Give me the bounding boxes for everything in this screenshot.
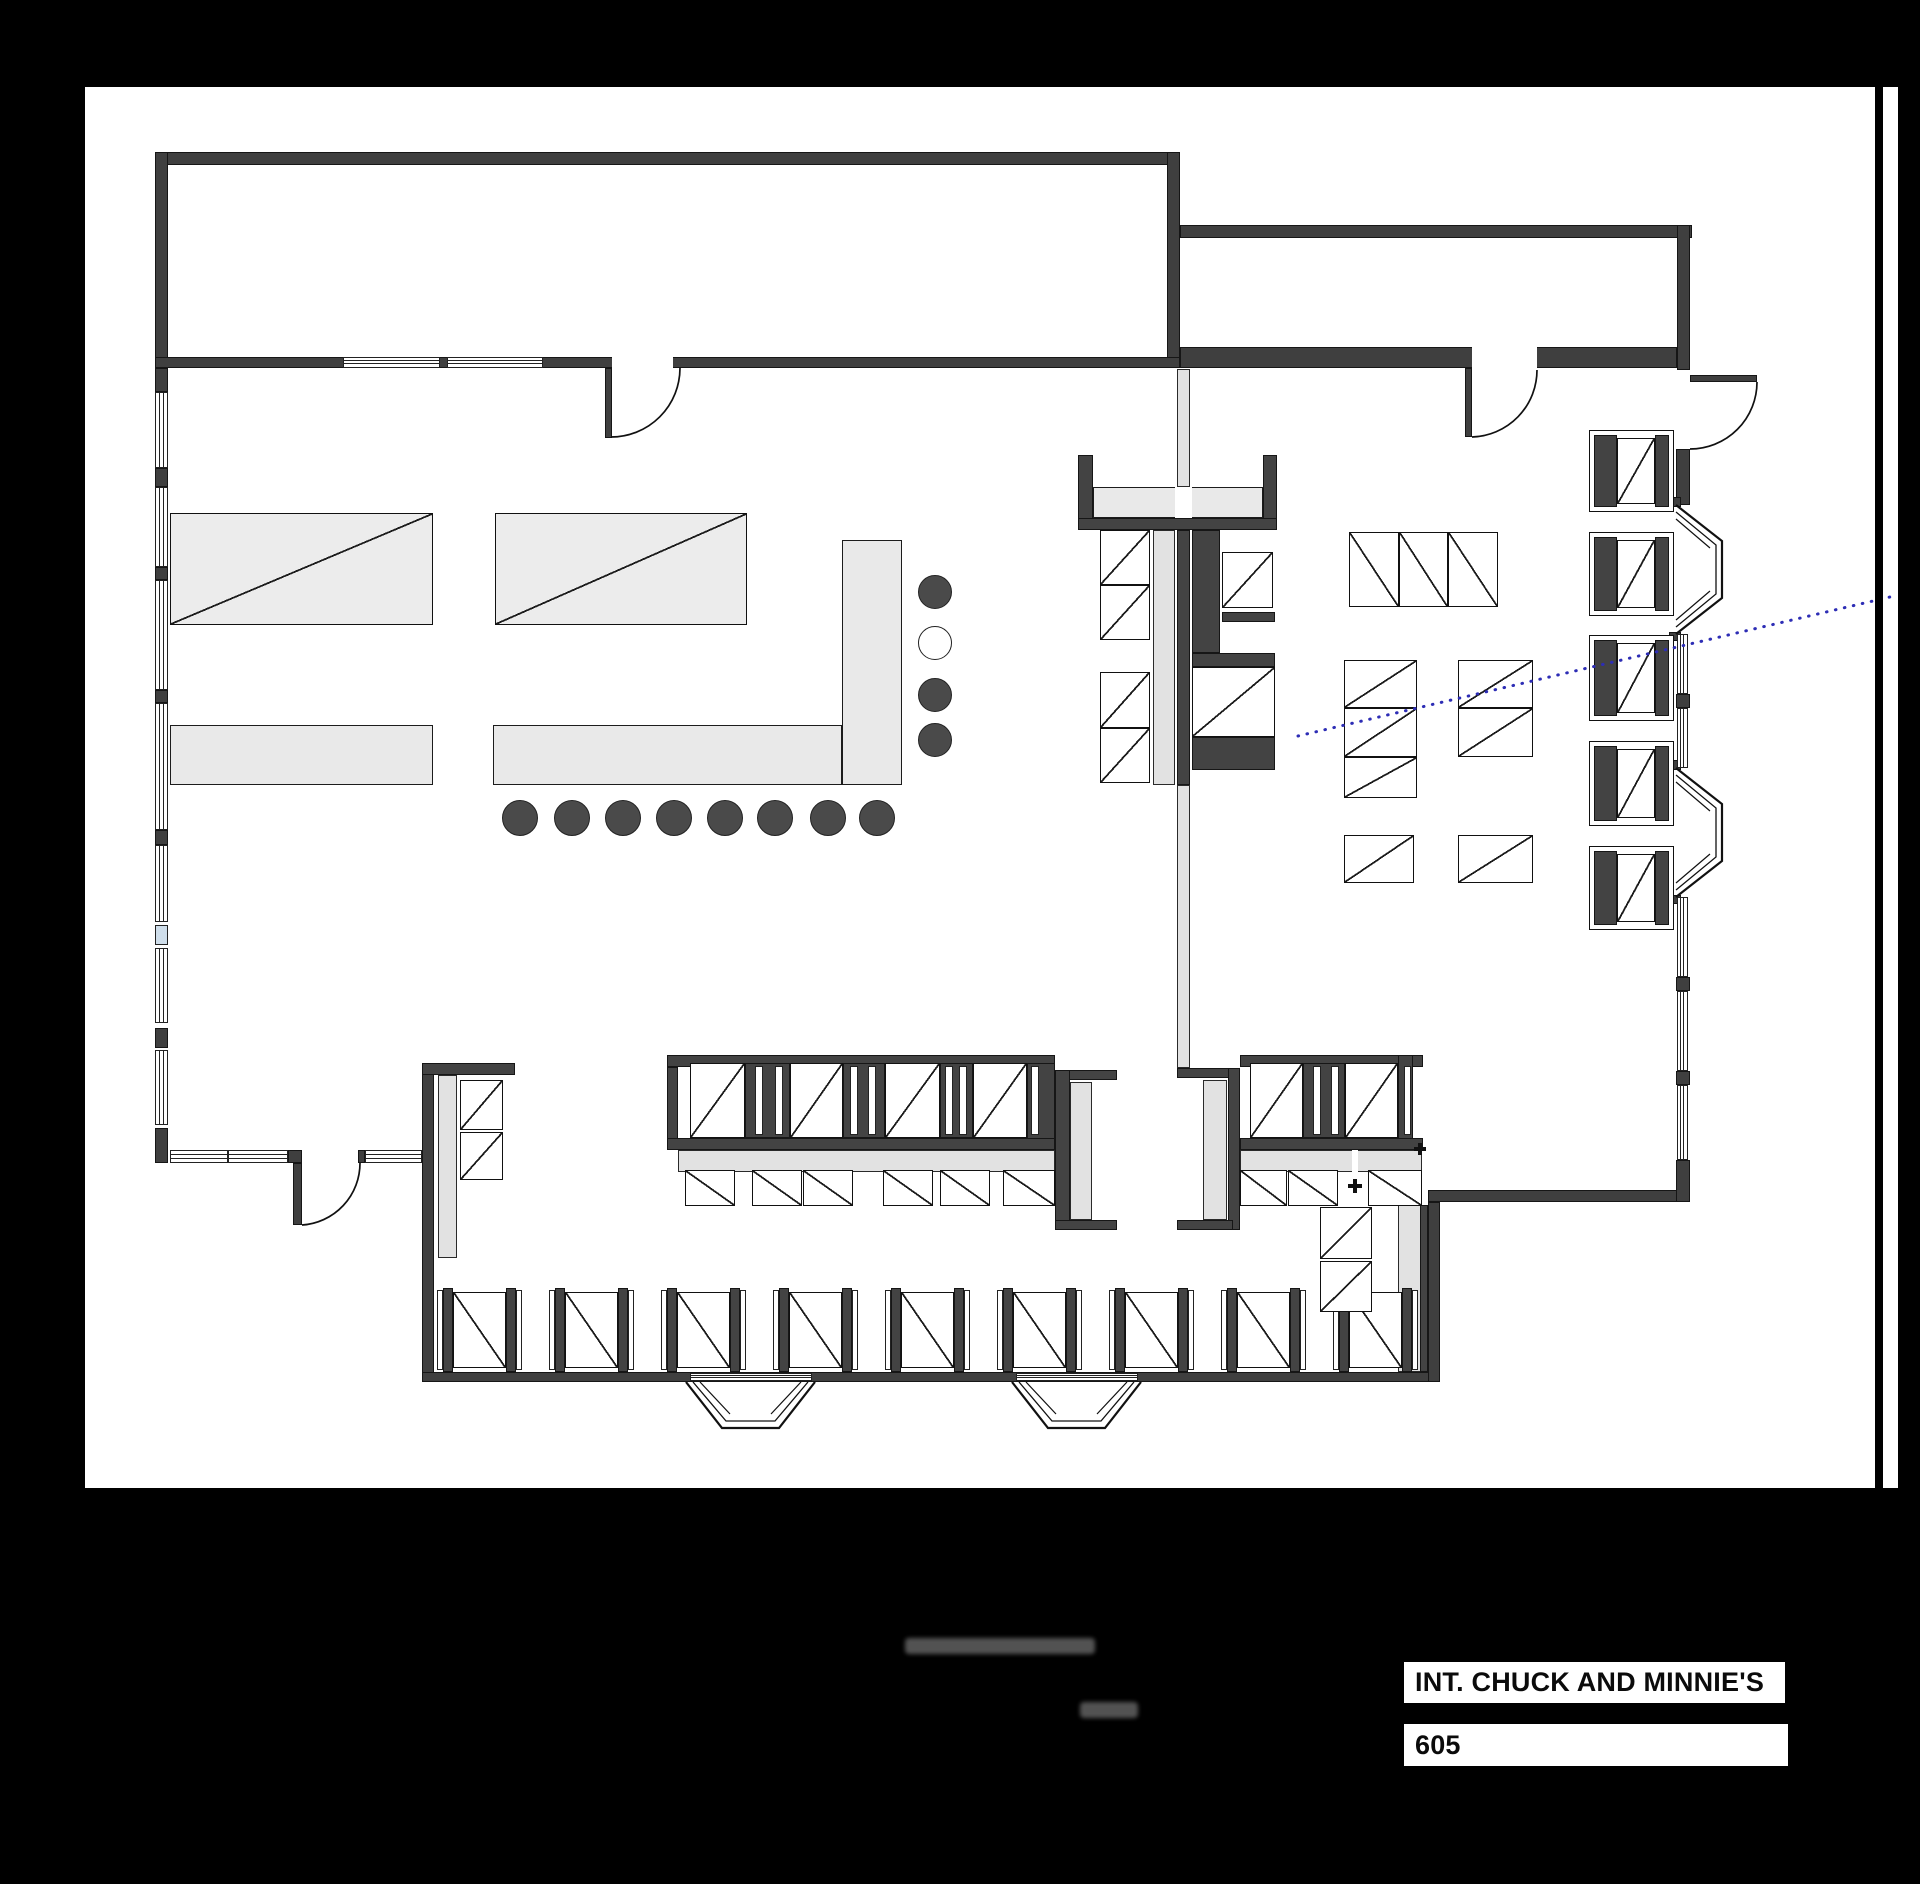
window <box>690 1373 812 1381</box>
counter-stool <box>918 678 952 712</box>
floor-plan-drawing <box>0 0 1920 1884</box>
kitchen-table <box>495 513 747 625</box>
booth-table <box>940 1170 990 1206</box>
divider-wall-back-rooms <box>1167 152 1180 368</box>
window <box>228 1150 288 1163</box>
booth-table <box>790 1063 843 1138</box>
bench-back <box>964 1290 970 1370</box>
kitchen-table <box>170 513 433 625</box>
counter-stool <box>810 800 846 836</box>
booth-table <box>973 1063 1027 1138</box>
booth-bench <box>1290 1288 1300 1372</box>
island-post <box>1078 455 1093 520</box>
booth-bench <box>1594 435 1617 507</box>
right-wall-stub <box>1676 1071 1690 1085</box>
lunch-counter-corner <box>845 727 900 783</box>
corner-booth-table <box>1320 1207 1372 1259</box>
booth-table <box>460 1132 503 1180</box>
booth-bench <box>1655 851 1669 925</box>
window <box>343 357 440 368</box>
top-wall-back-right-room <box>1180 225 1692 238</box>
island-equipment-block <box>1192 530 1220 653</box>
dining-table <box>1458 835 1533 883</box>
left-wall-segment <box>155 1028 168 1048</box>
left-wall-segment <box>155 690 168 703</box>
booth-bench <box>1594 640 1617 716</box>
dining-table <box>1344 708 1417 757</box>
booth-bench <box>1066 1288 1076 1372</box>
left-wall-segment <box>155 468 168 487</box>
counter-stool <box>918 723 952 757</box>
booth-bench <box>1655 435 1669 507</box>
entry-door-jamb <box>288 1150 302 1163</box>
window <box>155 845 168 922</box>
window <box>155 487 168 567</box>
booth-table <box>453 1292 506 1368</box>
scene-number-box: 605 <box>1404 1724 1788 1766</box>
counter-stool <box>707 800 743 836</box>
dining-table <box>1458 660 1533 708</box>
bench-back <box>1331 1066 1339 1135</box>
bench-gap <box>1352 1150 1358 1172</box>
window <box>1677 708 1688 768</box>
booth-table <box>690 1063 745 1138</box>
counter-stool <box>605 800 641 836</box>
booth-endcap-spine <box>1228 1068 1240 1230</box>
right-wall-back-right-room <box>1677 225 1690 370</box>
counter-stool <box>859 800 895 836</box>
island-shelf <box>1192 653 1275 667</box>
booth-endcap-flange <box>1055 1220 1117 1230</box>
booth-row-right-bench <box>1240 1150 1422 1172</box>
booth-bench <box>506 1288 516 1372</box>
island-bench <box>1153 530 1175 785</box>
bench-back <box>1404 1066 1411 1135</box>
booth-table <box>1250 1063 1303 1138</box>
booth-bench <box>730 1288 740 1372</box>
booth-row-left-bottom-band <box>667 1138 1055 1150</box>
booth-bench <box>1178 1288 1188 1372</box>
island-table <box>1100 530 1150 585</box>
sheet-border-line <box>1875 87 1883 1488</box>
corner-booth-table <box>1320 1261 1372 1312</box>
door-leaf-back-wall <box>605 368 612 438</box>
bench-back <box>868 1066 876 1135</box>
window <box>1677 634 1688 694</box>
screenshot-root: INT. CHUCK AND MINNIE'S 605 <box>0 0 1920 1884</box>
booth-table <box>460 1080 503 1130</box>
island-table <box>1192 667 1275 737</box>
booth-table <box>685 1170 735 1206</box>
right-wall-stub <box>1676 694 1690 708</box>
counter-stool <box>656 800 692 836</box>
left-booth-bench <box>438 1075 457 1258</box>
booth-table <box>1617 643 1655 713</box>
booth-row-right-bottom-band <box>1240 1138 1423 1150</box>
right-wall-stub <box>1676 977 1690 991</box>
booth-table <box>677 1292 730 1368</box>
window <box>1677 991 1688 1071</box>
artifact-smudge <box>1080 1702 1138 1718</box>
island-table <box>1100 672 1150 728</box>
booth-table <box>1617 749 1655 818</box>
booth-endcap-flange <box>1177 1220 1233 1230</box>
island-table <box>1100 585 1150 640</box>
bench-back <box>850 1066 858 1135</box>
booth-bench <box>1655 640 1669 716</box>
booth-bench <box>1655 537 1669 611</box>
counter-stool <box>757 800 793 836</box>
left-wall-back-room <box>155 152 168 368</box>
dining-table <box>1344 757 1417 798</box>
booth-table <box>803 1170 853 1206</box>
left-wall-segment <box>155 830 168 845</box>
window <box>365 1150 422 1163</box>
booth-table <box>885 1063 940 1138</box>
booth-bench <box>1115 1288 1125 1372</box>
glass-pane <box>155 925 168 945</box>
booth-endcap-bench <box>1070 1082 1092 1220</box>
bench-back <box>755 1066 763 1135</box>
window <box>155 580 168 690</box>
counter-stool <box>554 800 590 836</box>
bench-back <box>740 1290 746 1370</box>
booth-table <box>1288 1170 1338 1206</box>
top-wall-back-room <box>155 152 1180 165</box>
dining-table <box>1344 835 1414 883</box>
bench-back <box>1031 1066 1039 1135</box>
booth-bench <box>555 1288 565 1372</box>
bench-back <box>1412 1290 1418 1370</box>
booth-table <box>1237 1292 1290 1368</box>
bench-back <box>628 1290 634 1370</box>
bench-back <box>852 1290 858 1370</box>
island-pass-gap <box>1175 487 1192 518</box>
booth-bench <box>1594 537 1617 611</box>
booth-bench <box>1655 746 1669 821</box>
window <box>1677 1085 1688 1160</box>
left-booth-cap <box>422 1063 515 1075</box>
booth-endcap-flange <box>1177 1068 1233 1078</box>
bench-back <box>775 1066 783 1135</box>
booth-bench <box>1594 851 1617 925</box>
island-table <box>1100 728 1150 783</box>
booth-table <box>1345 1063 1398 1138</box>
window <box>170 1150 228 1163</box>
bench-back <box>945 1066 953 1135</box>
booth-bench <box>667 1288 677 1372</box>
booth-table <box>901 1292 954 1368</box>
left-wall-segment <box>155 368 168 392</box>
plus-marker <box>1348 1179 1362 1193</box>
right-wall-segment <box>1676 1160 1690 1202</box>
dining-table <box>1349 532 1399 607</box>
counter-stool <box>918 575 952 609</box>
booth-bench <box>618 1288 628 1372</box>
booth-table <box>1125 1292 1178 1368</box>
booth-table <box>1617 438 1655 504</box>
scene-name-box: INT. CHUCK AND MINNIE'S <box>1404 1662 1785 1703</box>
booth-bench <box>891 1288 901 1372</box>
window <box>1677 897 1688 977</box>
window <box>155 392 168 468</box>
booth-bench <box>1594 746 1617 821</box>
dining-table <box>1448 532 1498 607</box>
island-table <box>1222 552 1273 608</box>
window <box>155 948 168 1023</box>
door-leaf-entry <box>293 1163 302 1225</box>
lower-left-wall <box>422 1063 434 1382</box>
booth-table <box>1368 1170 1422 1206</box>
bottom-wall <box>422 1372 1440 1382</box>
booth-bench <box>1402 1288 1412 1372</box>
bench-back <box>1300 1290 1306 1370</box>
bench-back <box>1188 1290 1194 1370</box>
scene-number-label: 605 <box>1415 1732 1461 1759</box>
scene-name-label: INT. CHUCK AND MINNIE'S <box>1415 1669 1764 1696</box>
door-leaf-exterior-right <box>1690 375 1757 382</box>
door-opening-back-wall <box>612 357 673 369</box>
prep-counter <box>170 725 433 785</box>
bench-back <box>1313 1066 1321 1135</box>
service-partition-lower <box>1177 785 1190 1068</box>
counter-stool <box>502 800 538 836</box>
entry-door-jamb <box>358 1150 365 1163</box>
booth-bench <box>842 1288 852 1372</box>
island-counter-back <box>1078 518 1277 530</box>
booth-bench <box>779 1288 789 1372</box>
plus-marker <box>1414 1143 1426 1155</box>
booth-table <box>1617 854 1655 922</box>
bench-back <box>516 1290 522 1370</box>
booth-table <box>883 1170 933 1206</box>
island-post <box>1263 455 1277 520</box>
booth-table <box>1013 1292 1066 1368</box>
booth-bench <box>1003 1288 1013 1372</box>
window <box>155 703 168 830</box>
bench-back <box>959 1066 967 1135</box>
booth-endcap-bench <box>1203 1080 1227 1220</box>
booth-table <box>1240 1170 1287 1206</box>
dining-table <box>1344 660 1417 708</box>
counter-stool <box>918 626 952 660</box>
booth-table <box>789 1292 842 1368</box>
artifact-smudge <box>905 1638 1095 1654</box>
window <box>155 1050 168 1125</box>
dining-table <box>1458 708 1533 757</box>
booth-divider <box>745 1063 790 1138</box>
island-spine <box>1177 530 1190 785</box>
window <box>447 357 543 368</box>
booth-row-left-bench <box>678 1150 1055 1172</box>
door-leaf-back-right-room <box>1465 368 1472 437</box>
island-base <box>1192 737 1275 770</box>
booth-table <box>565 1292 618 1368</box>
service-partition <box>1177 369 1190 487</box>
bottom-wall-back-right-room <box>1180 347 1677 368</box>
lower-right-wall-horizontal <box>1428 1190 1690 1202</box>
lunch-counter <box>493 725 842 785</box>
left-wall-segment <box>155 567 168 580</box>
lower-right-wall-vertical <box>1428 1202 1440 1382</box>
door-opening-back-right-room <box>1472 347 1537 368</box>
booth-bench <box>443 1288 453 1372</box>
island-shelf <box>1222 612 1275 622</box>
window <box>1016 1373 1138 1381</box>
booth-bench <box>1227 1288 1237 1372</box>
booth-endcap-spine <box>1055 1070 1070 1230</box>
dining-table <box>1399 532 1448 607</box>
booth-bench <box>954 1288 964 1372</box>
booth-table <box>752 1170 802 1206</box>
left-wall-segment <box>155 1128 168 1163</box>
corner-booth-spine <box>1420 1205 1428 1372</box>
bench-back <box>1076 1290 1082 1370</box>
booth-table <box>1003 1170 1055 1206</box>
booth-table <box>1617 540 1655 608</box>
